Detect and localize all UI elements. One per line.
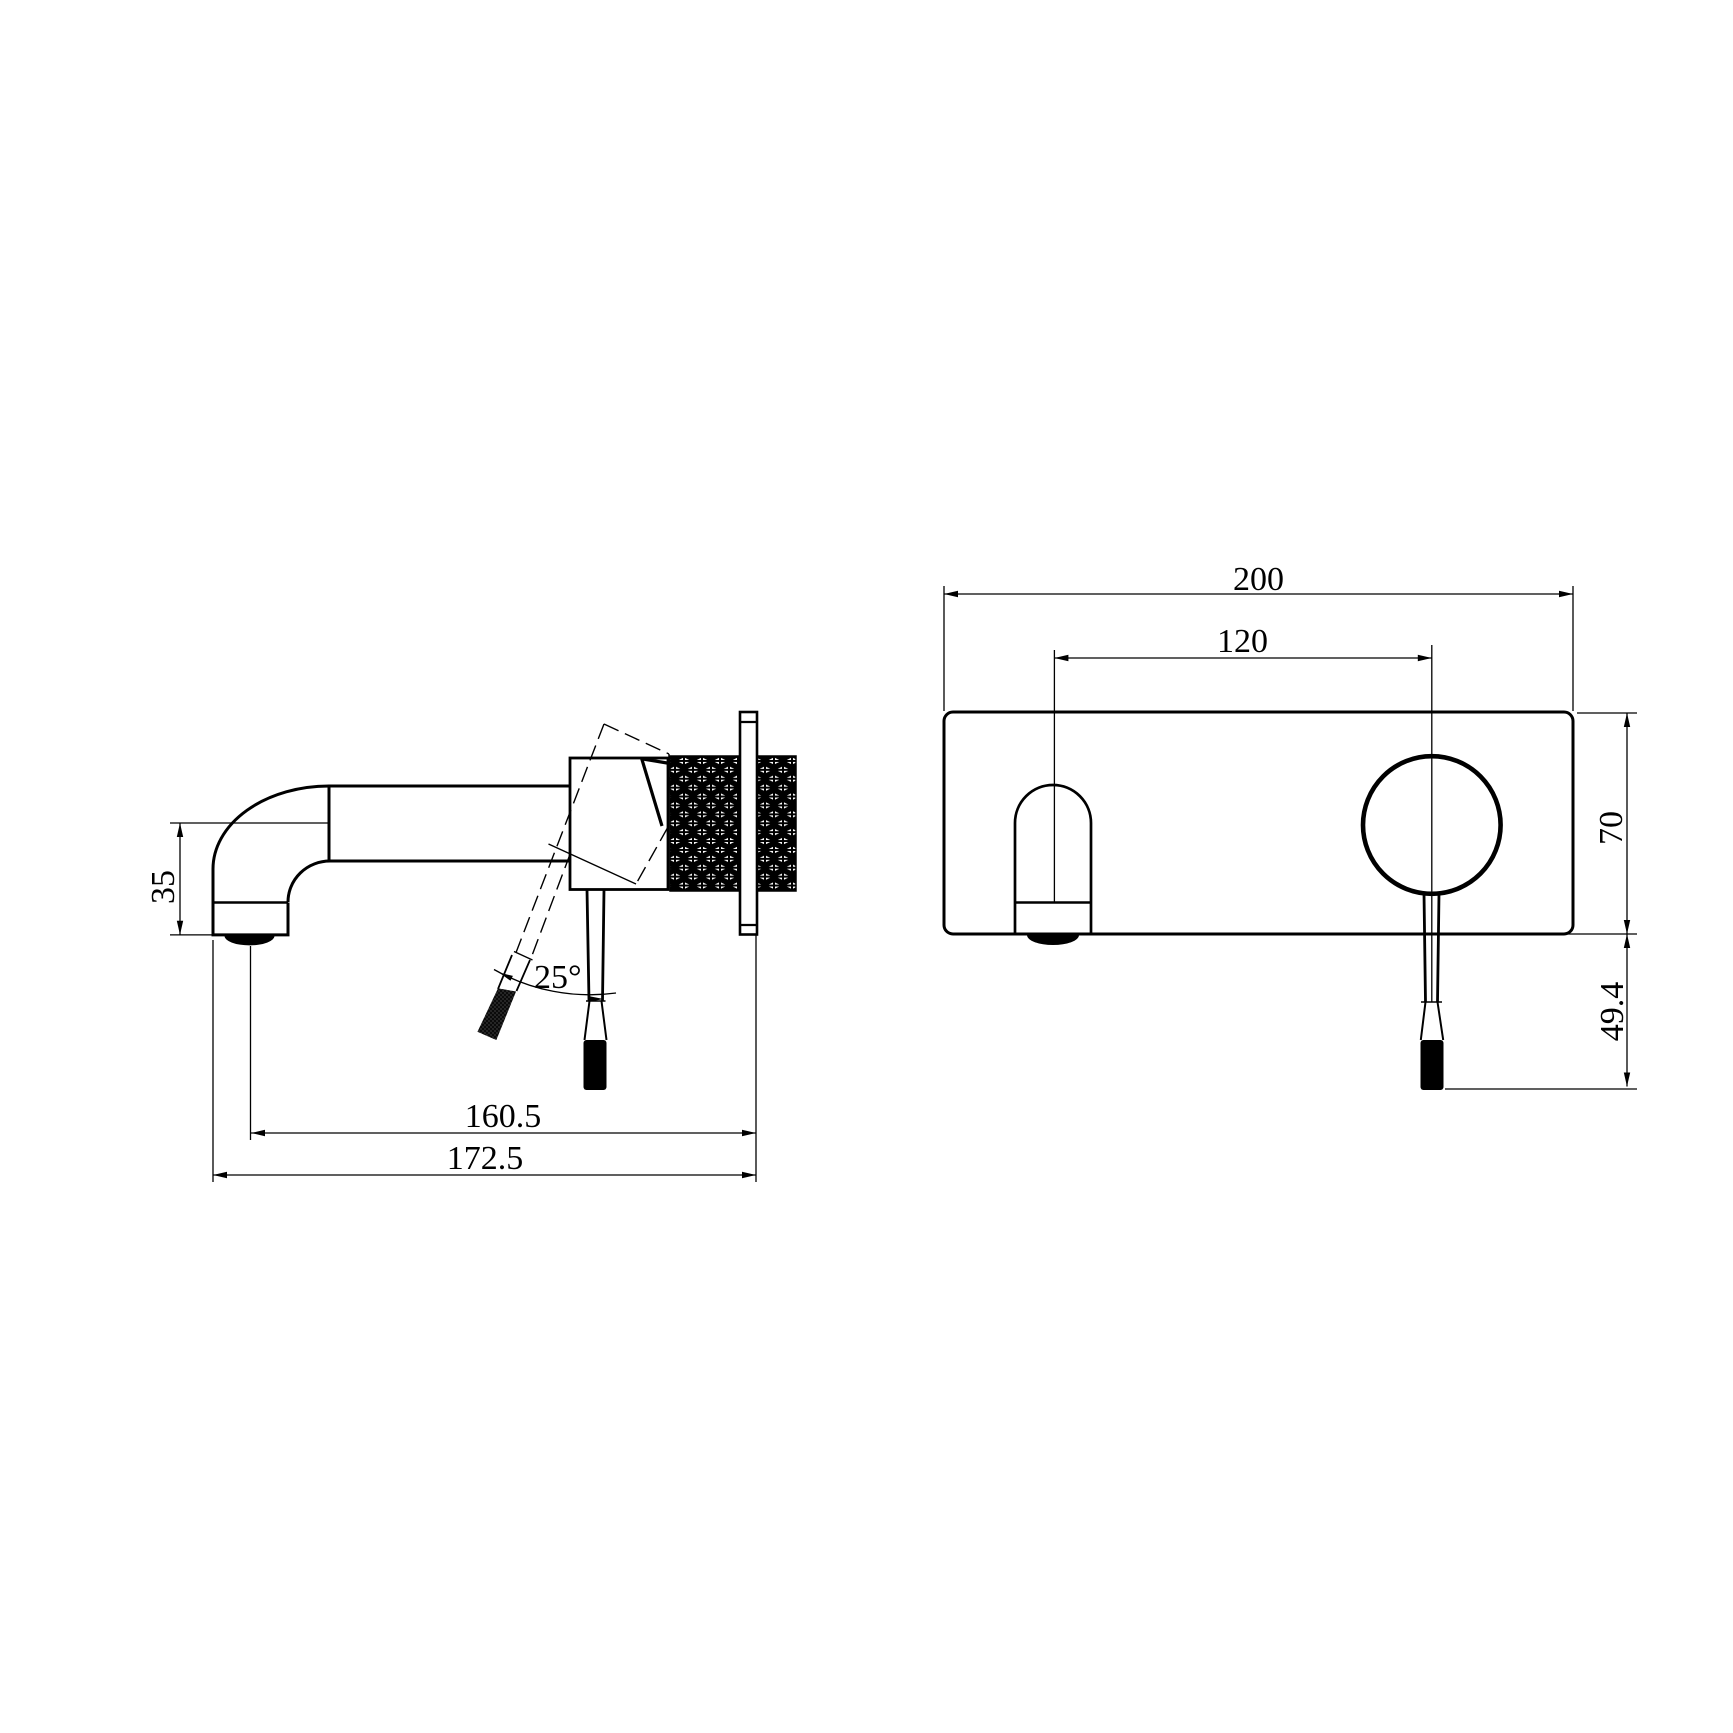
- svg-text:35: 35: [145, 870, 182, 904]
- svg-text:70: 70: [1593, 811, 1630, 845]
- svg-text:200: 200: [1233, 561, 1284, 598]
- svg-text:172.5: 172.5: [447, 1140, 524, 1177]
- svg-text:25°: 25°: [534, 959, 582, 996]
- svg-text:120: 120: [1217, 623, 1268, 660]
- svg-text:49.4: 49.4: [1594, 982, 1631, 1042]
- svg-text:160.5: 160.5: [465, 1098, 542, 1135]
